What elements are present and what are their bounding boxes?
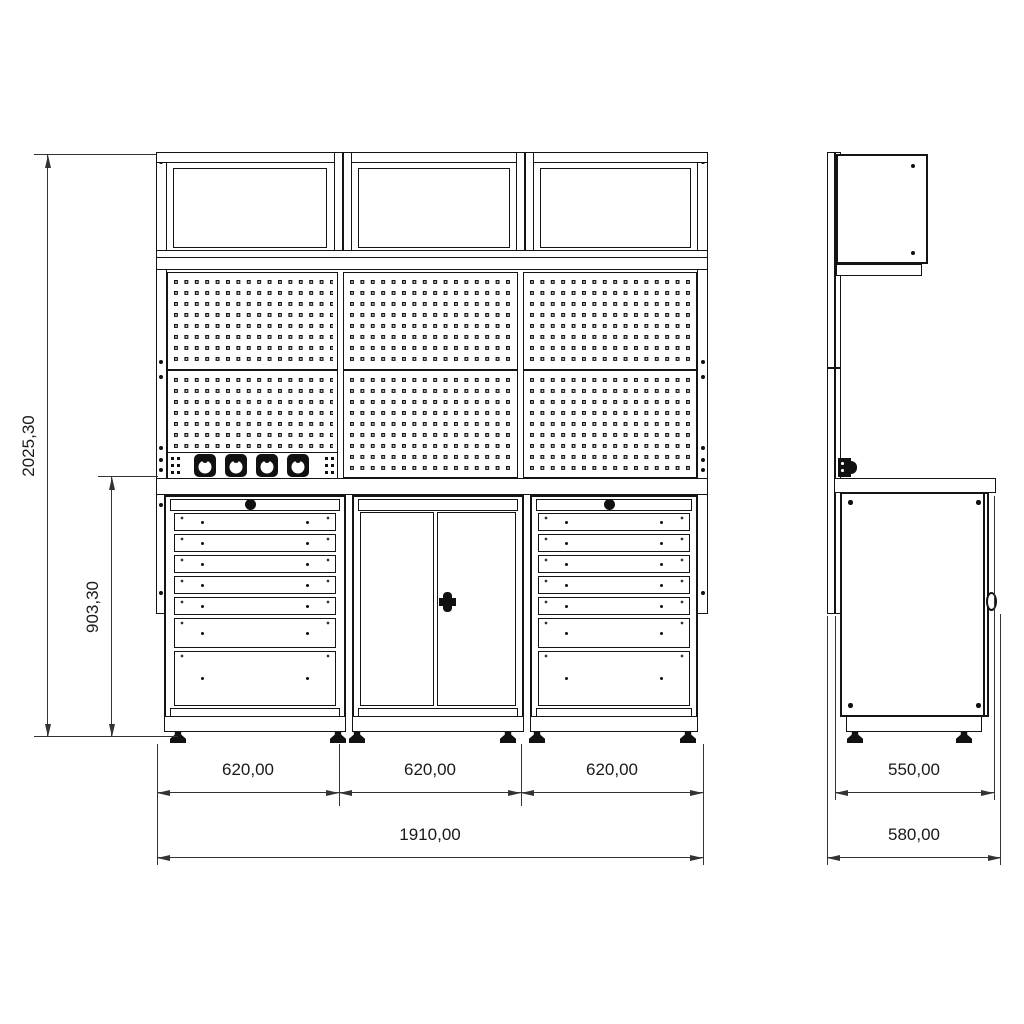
power-strip <box>167 452 338 479</box>
pegboard-panel <box>343 370 518 478</box>
drawer <box>538 576 690 594</box>
levelling-foot-icon <box>529 731 545 743</box>
strip-mount-dot <box>325 464 328 467</box>
levelling-foot-icon <box>680 731 696 743</box>
side-socket-bracket <box>838 458 851 477</box>
strip-mount-dot <box>325 457 328 460</box>
screw-dot-icon <box>159 458 163 462</box>
drawer-knob-icon <box>604 499 615 510</box>
drawer <box>538 534 690 552</box>
door-left <box>360 512 434 706</box>
shelf-post <box>334 152 343 262</box>
shelf-rail <box>156 257 708 270</box>
screw-dot-icon <box>911 164 915 168</box>
screw-dot-icon <box>701 375 705 379</box>
power-socket-icon <box>225 454 247 477</box>
dim-label: 580,00 <box>888 825 940 845</box>
screw-dot-icon <box>701 360 705 364</box>
strip-mount-dot <box>177 457 180 460</box>
extension-line <box>157 744 158 865</box>
base-plinth-side <box>846 716 982 732</box>
power-socket-icon <box>194 454 216 477</box>
extension-line <box>994 496 995 800</box>
power-socket-icon <box>287 454 309 477</box>
strip-mount-dot <box>325 471 328 474</box>
drawer <box>538 555 690 573</box>
screw-dot-icon <box>701 458 705 462</box>
worktop <box>156 478 708 495</box>
screw-dot-icon <box>159 503 163 507</box>
extension-line <box>34 154 156 155</box>
pegboard-panel <box>167 370 338 453</box>
extension-line <box>98 476 158 477</box>
technical-drawing-canvas: 2025,30 903,30 620,00 620,00 620,00 <box>0 0 1024 1024</box>
strip-mount-dot <box>331 457 334 460</box>
dim-label: 1910,00 <box>399 825 460 845</box>
drawer <box>174 534 336 552</box>
strip-mount-dot <box>331 464 334 467</box>
side-socket-icon <box>851 461 857 474</box>
drawer <box>538 618 690 648</box>
drawer <box>174 555 336 573</box>
extension-line <box>703 744 704 865</box>
levelling-foot-icon <box>330 731 346 743</box>
drawer <box>538 597 690 615</box>
extension-line <box>339 744 340 806</box>
upright-post-right <box>697 152 708 614</box>
screw-dot-icon <box>159 360 163 364</box>
worktop-side <box>834 478 996 493</box>
drawer <box>174 618 336 648</box>
screw-dot-icon <box>976 703 981 708</box>
dim-label: 903,30 <box>83 581 103 633</box>
pegboard-panel <box>167 272 338 370</box>
drawer <box>174 651 336 706</box>
top-shelf-compartment <box>540 168 691 248</box>
strip-mount-dot <box>177 464 180 467</box>
pegboard-panel <box>343 272 518 370</box>
extension-line <box>827 616 828 865</box>
base-plinth <box>164 716 346 732</box>
dim-label: 550,00 <box>888 760 940 780</box>
drawer <box>174 513 336 531</box>
top-rail <box>156 152 708 163</box>
wall-cabinet-bottom-rail <box>836 264 922 276</box>
post-joint-line <box>827 367 841 369</box>
screw-dot-icon <box>848 500 853 505</box>
dim-label: 620,00 <box>222 760 274 780</box>
drawer <box>538 651 690 706</box>
base-plinth <box>352 716 524 732</box>
levelling-foot-icon <box>500 731 516 743</box>
levelling-foot-icon <box>847 731 863 743</box>
top-shelf-compartment <box>173 168 327 248</box>
drawer-knob-icon <box>245 499 256 510</box>
drawer <box>174 597 336 615</box>
drawer <box>174 576 336 594</box>
pegboard-panel <box>523 272 697 370</box>
screw-dot-icon <box>911 251 915 255</box>
top-shelf-compartment <box>358 168 510 248</box>
extension-line <box>835 616 836 800</box>
shelf-post <box>516 152 525 262</box>
screw-dot-icon <box>159 375 163 379</box>
screw-dot-icon <box>701 468 705 472</box>
extension-line <box>521 744 522 806</box>
strip-mount-dot <box>177 471 180 474</box>
levelling-foot-icon <box>170 731 186 743</box>
dim-label: 2025,30 <box>19 415 39 476</box>
bracket-dot <box>841 469 844 472</box>
door-edge-line <box>983 492 985 717</box>
extension-line <box>34 736 178 737</box>
dim-label: 620,00 <box>404 760 456 780</box>
strip-mount-dot <box>331 471 334 474</box>
strip-mount-dot <box>171 464 174 467</box>
dim-label: 620,00 <box>586 760 638 780</box>
shelf-post <box>525 152 534 262</box>
strip-mount-dot <box>171 471 174 474</box>
levelling-foot-icon <box>349 731 365 743</box>
base-plinth <box>530 716 698 732</box>
cabinet-side-panel <box>840 492 989 717</box>
drawer <box>538 513 690 531</box>
wall-cabinet-side <box>836 154 928 264</box>
pegboard-panel <box>523 370 697 478</box>
cabinet-top-strip <box>358 499 518 511</box>
screw-dot-icon <box>701 591 705 595</box>
door-lock-icon <box>443 592 452 612</box>
screw-dot-icon <box>159 446 163 450</box>
power-socket-icon <box>256 454 278 477</box>
screw-dot-icon <box>848 703 853 708</box>
screw-dot-icon <box>159 591 163 595</box>
screw-dot-icon <box>976 500 981 505</box>
levelling-foot-icon <box>956 731 972 743</box>
shelf-post <box>343 152 352 262</box>
extension-line <box>1000 614 1001 865</box>
handle-icon <box>986 592 997 611</box>
bracket-dot <box>841 462 844 465</box>
screw-dot-icon <box>701 446 705 450</box>
screw-dot-icon <box>159 468 163 472</box>
strip-mount-dot <box>171 457 174 460</box>
